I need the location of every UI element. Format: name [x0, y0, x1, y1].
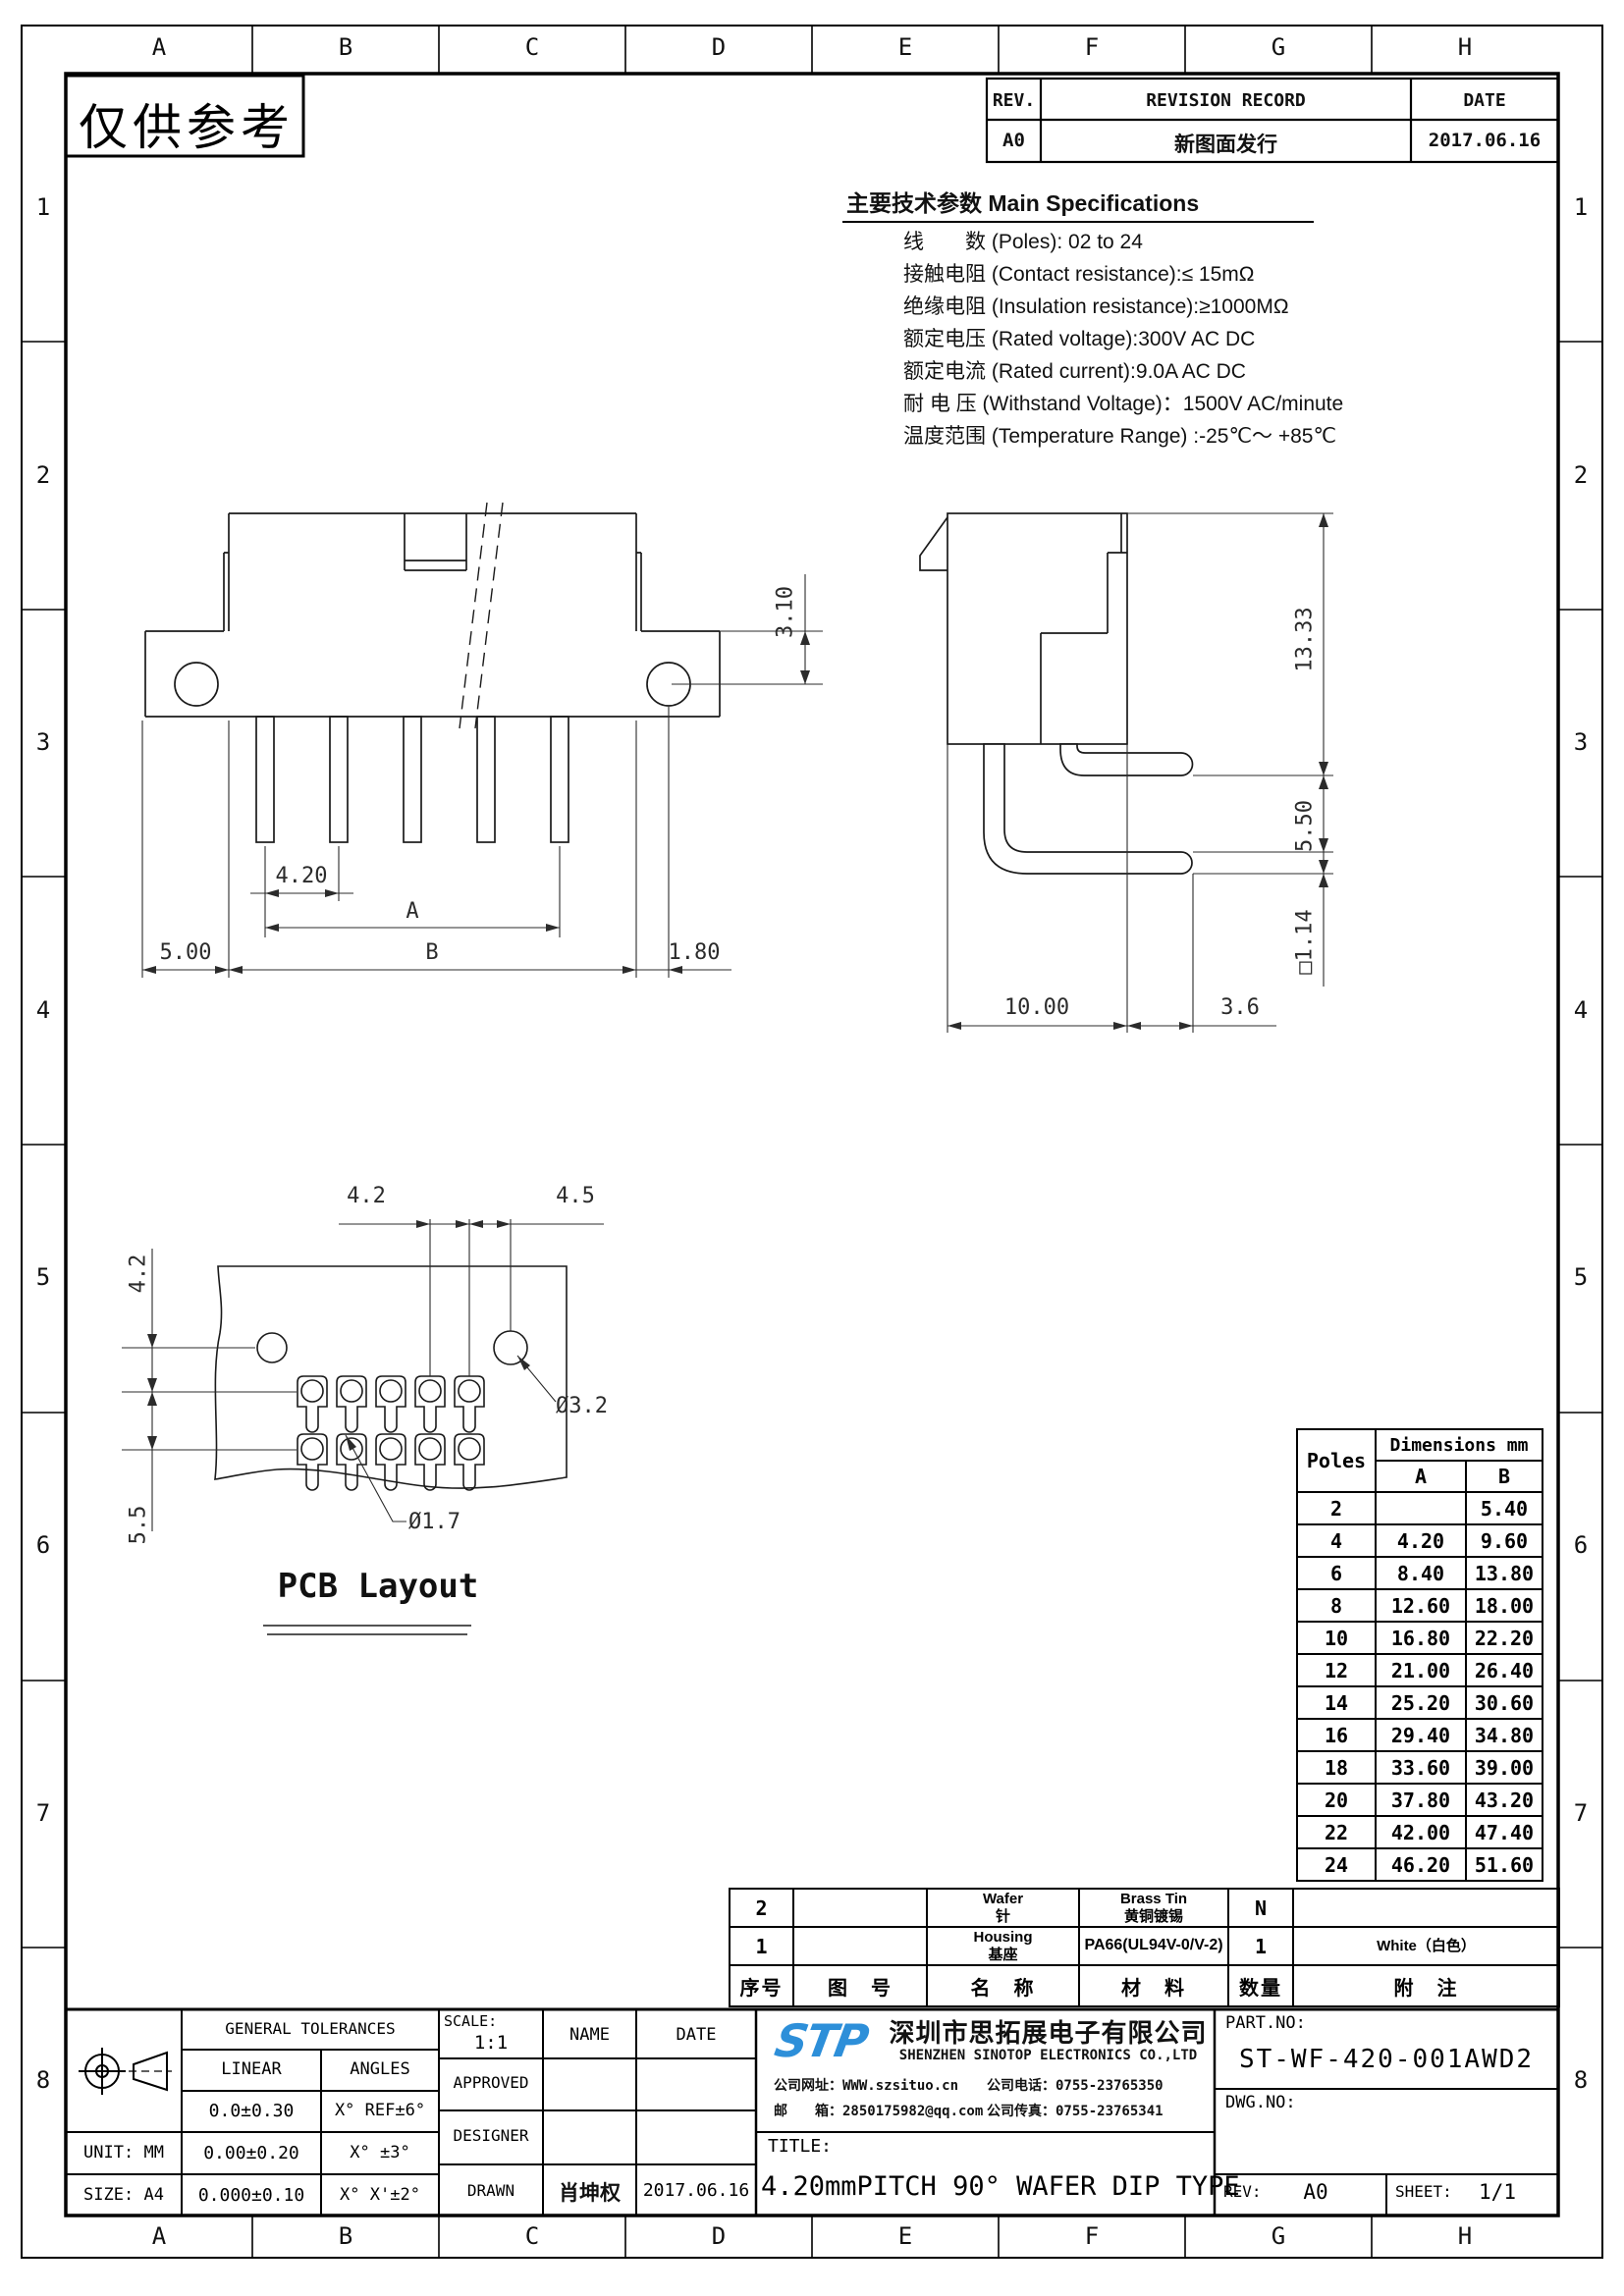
grid-col-label: C — [513, 33, 552, 63]
grid-col-label: F — [1072, 33, 1111, 63]
grid-row-label: 2 — [1561, 461, 1600, 491]
poles-cell: 24 — [1297, 1848, 1376, 1881]
company-tel-value: 0755-23765350 — [1056, 2078, 1164, 2094]
poles-cell: 14 — [1297, 1686, 1376, 1719]
dim-b-cell: 18.00 — [1466, 1589, 1543, 1622]
designer-label: DESIGNER — [439, 2126, 543, 2145]
specs-line: 线 数 (Poles): 02 to 24 — [903, 226, 1143, 255]
grid-col-label: D — [699, 33, 738, 63]
grid-col-label: F — [1072, 2222, 1111, 2252]
dim-b-cell: 47.40 — [1466, 1816, 1543, 1848]
bom-part-name-cn: 基座 — [928, 1947, 1078, 1963]
dim-side-5-50: 5.50 — [1293, 792, 1318, 861]
dim-b-cell: 26.40 — [1466, 1654, 1543, 1686]
company-name-en: SHENZHEN SINOTOP ELECTRONICS CO.,LTD — [889, 2048, 1208, 2063]
grid-row-label: 4 — [24, 996, 63, 1026]
grid-row-label: 6 — [24, 1531, 63, 1561]
bom-header-qty: 数量 — [1228, 1965, 1293, 2006]
bom-item-no: 2 — [730, 1889, 793, 1927]
grid-row-label: 3 — [24, 728, 63, 758]
specs-title: 主要技术参数 Main Specifications — [846, 185, 1199, 218]
dim-a-cell: 29.40 — [1376, 1719, 1466, 1751]
bom-part-name: Wafer针 — [927, 1889, 1079, 1927]
reference-only-stamp: 仅供参考 — [79, 88, 295, 159]
dim-b-cell: 34.80 — [1466, 1719, 1543, 1751]
bom-part-name-en: Wafer — [928, 1891, 1078, 1907]
grid-col-label: A — [139, 33, 179, 63]
bom-part-name-en: Housing — [928, 1929, 1078, 1946]
grid-col-label: H — [1445, 33, 1485, 63]
bom-dwg-no — [793, 1927, 927, 1965]
grid-col-label: E — [886, 33, 925, 63]
bom-item-no: 1 — [730, 1927, 793, 1965]
company-web-value: WWW.szsituo.cn — [842, 2078, 958, 2094]
tolerances-header: GENERAL TOLERANCES — [182, 2019, 439, 2038]
tolerances-angles-label: ANGLES — [321, 2059, 439, 2079]
specs-line: 绝缘电阻 (Insulation resistance):≥1000MΩ — [903, 291, 1289, 320]
rev-value: A0 — [1267, 2180, 1365, 2204]
grid-col-label: H — [1445, 2222, 1485, 2252]
company-web: 公司网址：WWW.szsituo.cn — [774, 2075, 958, 2095]
bom-material: Brass Tin黄铜镀锡 — [1079, 1889, 1228, 1927]
poles-cell: 22 — [1297, 1816, 1376, 1848]
dwgno-label: DWG.NO: — [1225, 2093, 1296, 2112]
name-header: NAME — [543, 2025, 636, 2045]
scale-value: 1:1 — [439, 2032, 543, 2054]
company-fax-label: 公司传真： — [987, 2103, 1056, 2118]
dim-front-1-80: 1.80 — [650, 940, 738, 965]
partno-value: ST-WF-420-001AWD2 — [1215, 2045, 1558, 2074]
revision-record-value: 新图面发行 — [1041, 129, 1411, 158]
dim-a-cell — [1376, 1492, 1466, 1524]
grid-col-label: C — [513, 2222, 552, 2252]
company-fax-value: 0755-23765341 — [1056, 2104, 1164, 2119]
dim-a-cell: 16.80 — [1376, 1622, 1466, 1654]
grid-row-label: 8 — [1561, 2066, 1600, 2096]
bom-note — [1293, 1889, 1559, 1927]
dim-front-b: B — [407, 940, 457, 965]
company-tel: 公司电话：0755-23765350 — [987, 2075, 1164, 2095]
dim-a-cell: 12.60 — [1376, 1589, 1466, 1622]
bom-material-value: PA66(UL94V-0/V-2) — [1080, 1937, 1227, 1954]
dim-front-a: A — [388, 899, 437, 924]
bom-part-name-cn: 针 — [928, 1908, 1078, 1925]
dim-pcb-pad-dia: Ø1.7 — [408, 1510, 487, 1534]
col-b-header: B — [1466, 1461, 1543, 1492]
grid-col-label: D — [699, 2222, 738, 2252]
poles-dimensions-table: Poles Dimensions mm A B 25.40 44.209.60 … — [1296, 1428, 1543, 1882]
dim-pcb-hole-dia: Ø3.2 — [556, 1394, 634, 1418]
bom-material: PA66(UL94V-0/V-2) — [1079, 1927, 1228, 1965]
poles-col-header: Poles — [1297, 1429, 1376, 1492]
title-label: TITLE: — [768, 2136, 832, 2157]
dim-a-cell: 21.00 — [1376, 1654, 1466, 1686]
dim-pcb-4-2-left: 4.2 — [127, 1250, 151, 1299]
approved-label: APPROVED — [439, 2073, 543, 2092]
dim-a-cell: 8.40 — [1376, 1557, 1466, 1589]
grid-col-label: G — [1259, 33, 1298, 63]
pcb-layout-title: PCB Layout — [245, 1567, 511, 1606]
specs-line: 温度范围 (Temperature Range) :-25℃～ +85℃ — [903, 420, 1336, 450]
dim-front-3-10: 3.10 — [774, 578, 798, 647]
col-a-header: A — [1376, 1461, 1466, 1492]
dim-a-cell: 46.20 — [1376, 1848, 1466, 1881]
grid-row-label: 1 — [24, 193, 63, 223]
grid-row-label: 7 — [24, 1799, 63, 1829]
dim-b-cell: 30.60 — [1466, 1686, 1543, 1719]
company-email-value: 2850175982@qq.com — [842, 2104, 983, 2119]
bom-dwg-no — [793, 1889, 927, 1927]
bom-header-material: 材 料 — [1079, 1965, 1228, 2006]
scale-label: SCALE: — [444, 2012, 497, 2030]
drawn-date: 2017.06.16 — [636, 2180, 756, 2201]
dim-b-cell: 13.80 — [1466, 1557, 1543, 1589]
dim-a-cell: 37.80 — [1376, 1784, 1466, 1816]
poles-cell: 6 — [1297, 1557, 1376, 1589]
dim-pcb-4-2-top: 4.2 — [332, 1184, 401, 1208]
grid-row-label: 5 — [1561, 1263, 1600, 1293]
dim-b-cell: 22.20 — [1466, 1622, 1543, 1654]
specs-line: 额定电流 (Rated current):9.0A AC DC — [903, 355, 1246, 385]
tolerance-linear-value: 0.00±0.20 — [182, 2143, 321, 2163]
company-web-label: 公司网址： — [774, 2077, 842, 2093]
dim-side-13-33: 13.33 — [1293, 599, 1318, 681]
dim-front-5-00: 5.00 — [141, 940, 230, 965]
unit-label: UNIT: MM — [66, 2143, 182, 2163]
poles-cell: 18 — [1297, 1751, 1376, 1784]
date-header: DATE — [636, 2025, 756, 2045]
grid-col-label: G — [1259, 2222, 1298, 2252]
rev-label: REV: — [1223, 2182, 1262, 2201]
tolerances-linear-label: LINEAR — [182, 2059, 321, 2079]
specs-line: 额定电压 (Rated voltage):300V AC DC — [903, 323, 1255, 352]
dim-pcb-4-5-top: 4.5 — [541, 1184, 610, 1208]
grid-col-label: E — [886, 2222, 925, 2252]
poles-cell: 12 — [1297, 1654, 1376, 1686]
revision-header-date: DATE — [1411, 90, 1558, 111]
bom-note: White（白色） — [1293, 1927, 1559, 1965]
sheet-value: 1/1 — [1453, 2180, 1542, 2204]
partno-label: PART.NO: — [1225, 2013, 1306, 2033]
revision-header-record: REVISION RECORD — [1041, 90, 1411, 111]
grid-row-label: 1 — [1561, 193, 1600, 223]
specs-line: 接触电阻 (Contact resistance):≤ 15mΩ — [903, 258, 1254, 288]
dim-a-cell: 33.60 — [1376, 1751, 1466, 1784]
dim-pcb-5-5-left: 5.5 — [127, 1501, 151, 1550]
dim-a-cell: 4.20 — [1376, 1524, 1466, 1557]
bom-part-name: Housing基座 — [927, 1927, 1079, 1965]
bom-qty: N — [1228, 1889, 1293, 1927]
tolerance-angles-value: X° ±3° — [321, 2143, 439, 2163]
bom-qty: 1 — [1228, 1927, 1293, 1965]
size-label: SIZE: A4 — [66, 2185, 182, 2205]
bom-header-name: 名 称 — [927, 1965, 1079, 2006]
company-logo: STP — [771, 2014, 871, 2067]
poles-cell: 2 — [1297, 1492, 1376, 1524]
tolerance-angles-value: X° REF±6° — [321, 2101, 439, 2120]
grid-col-label: A — [139, 2222, 179, 2252]
dim-b-cell: 43.20 — [1466, 1784, 1543, 1816]
dim-b-cell: 9.60 — [1466, 1524, 1543, 1557]
company-fax: 公司传真：0755-23765341 — [987, 2101, 1164, 2120]
poles-cell: 8 — [1297, 1589, 1376, 1622]
dim-b-cell: 39.00 — [1466, 1751, 1543, 1784]
poles-cell: 16 — [1297, 1719, 1376, 1751]
sheet-label: SHEET: — [1395, 2182, 1452, 2201]
drawn-label: DRAWN — [439, 2181, 543, 2200]
bom-material-cn: 黄铜镀锡 — [1080, 1908, 1227, 1925]
company-tel-label: 公司电话： — [987, 2077, 1056, 2093]
revision-rev-value: A0 — [987, 130, 1041, 151]
grid-row-label: 5 — [24, 1263, 63, 1293]
tolerance-linear-value: 0.000±0.10 — [182, 2185, 321, 2206]
dim-b-cell: 5.40 — [1466, 1492, 1543, 1524]
dim-front-4-20: 4.20 — [257, 864, 346, 888]
engineering-drawing-sheet: A B C D E F G H A B C D E F G H 1 2 3 4 … — [0, 0, 1624, 2296]
grid-row-label: 7 — [1561, 1799, 1600, 1829]
grid-row-label: 8 — [24, 2066, 63, 2096]
dim-side-1-14: □1.14 — [1293, 901, 1318, 984]
company-email: 邮 箱：2850175982@qq.com — [774, 2101, 983, 2120]
bom-header-no: 序号 — [730, 1965, 793, 2006]
bom-material-en: Brass Tin — [1080, 1891, 1227, 1907]
grid-row-label: 6 — [1561, 1531, 1600, 1561]
revision-header-rev: REV. — [987, 90, 1041, 111]
tolerance-angles-value: X° X'±2° — [321, 2185, 439, 2205]
revision-date-value: 2017.06.16 — [1411, 130, 1558, 151]
poles-cell: 10 — [1297, 1622, 1376, 1654]
company-name-cn: 深圳市思拓展电子有限公司 — [889, 2013, 1208, 2050]
bom-table: 2 Wafer针 Brass Tin黄铜镀锡 N 1 Housing基座 PA6… — [729, 1888, 1560, 2007]
grid-col-label: B — [326, 2222, 365, 2252]
poles-cell: 20 — [1297, 1784, 1376, 1816]
bom-header-dwg: 图 号 — [793, 1965, 927, 2006]
dim-side-10-00: 10.00 — [988, 995, 1086, 1020]
grid-col-label: B — [326, 33, 365, 63]
grid-row-label: 4 — [1561, 996, 1600, 1026]
dim-a-cell: 42.00 — [1376, 1816, 1466, 1848]
grid-row-label: 2 — [24, 461, 63, 491]
drawn-name: 肖坤权 — [543, 2177, 636, 2207]
grid-row-label: 3 — [1561, 728, 1600, 758]
dims-header: Dimensions mm — [1376, 1429, 1543, 1461]
poles-cell: 4 — [1297, 1524, 1376, 1557]
dim-side-3-6: 3.6 — [1206, 995, 1274, 1020]
projection-symbol — [79, 2048, 172, 2095]
dim-b-cell: 51.60 — [1466, 1848, 1543, 1881]
specs-line: 耐 电 压 (Withstand Voltage)：1500V AC/minut… — [903, 388, 1343, 417]
bom-header-note: 附 注 — [1293, 1965, 1559, 2006]
dim-a-cell: 25.20 — [1376, 1686, 1466, 1719]
company-email-label: 邮 箱： — [774, 2103, 842, 2118]
drawing-title: 4.20mmPITCH 90° WAFER DIP TYPE — [761, 2171, 1210, 2202]
tolerance-linear-value: 0.0±0.30 — [182, 2101, 321, 2121]
